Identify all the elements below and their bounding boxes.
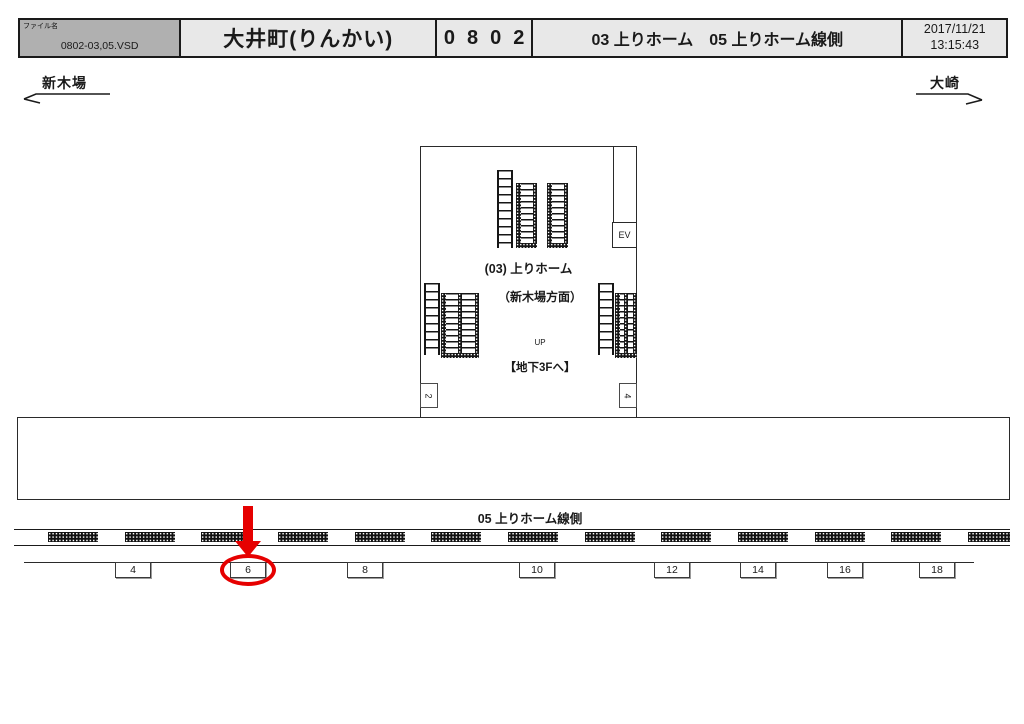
- track-hatch: [738, 532, 788, 542]
- position-marker-10-label: 10: [531, 564, 543, 576]
- location-code-cell: 0802: [437, 20, 533, 56]
- elevator-label: EV: [618, 230, 630, 240]
- escalator-rail: [533, 183, 538, 248]
- timestamp-date: 2017/11/21: [924, 22, 986, 38]
- column-marker-4-label: 4: [623, 393, 633, 398]
- highlight-arrow-shaft: [243, 506, 253, 542]
- station-name-cell: 大井町(りんかい): [181, 20, 437, 56]
- column-marker-2-label: 2: [424, 393, 434, 398]
- escalator-comb: [615, 353, 637, 358]
- platform-outline: [17, 417, 1010, 500]
- position-marker-16: 16: [827, 562, 863, 578]
- position-marker-10: 10: [519, 562, 555, 578]
- escalator-comb: [441, 353, 479, 358]
- position-marker-18: 18: [919, 562, 955, 578]
- stairs-upper-icon: [497, 170, 513, 248]
- track-hatch: [968, 532, 1010, 542]
- track-hatch: [278, 532, 328, 542]
- position-marker-12-label: 12: [666, 564, 678, 576]
- position-marker-8-label: 8: [362, 564, 368, 576]
- track-band: [14, 529, 1010, 546]
- position-marker-14: 14: [740, 562, 776, 578]
- column-marker-2: 2: [420, 383, 438, 408]
- station-diagram-page: ファイル名 0802-03,05.VSD 大井町(りんかい) 0802 03 上…: [0, 0, 1024, 724]
- basement-destination-label: 【地下3Fへ】: [432, 359, 648, 375]
- track-hatch: [125, 532, 175, 542]
- escalator-steps: [521, 183, 533, 248]
- diagram-description-cell: 03 上りホーム 05 上りホーム線側: [533, 20, 903, 56]
- file-name-label: ファイル名: [23, 21, 58, 31]
- escalator-upper-right-icon: [547, 183, 568, 248]
- elevator: EV: [612, 222, 637, 248]
- file-name-cell: ファイル名 0802-03,05.VSD: [20, 20, 181, 56]
- track-hatch: [355, 532, 405, 542]
- position-marker-12: 12: [654, 562, 690, 578]
- track-hatch: [585, 532, 635, 542]
- highlight-circle: [220, 554, 276, 586]
- track-hatch: [508, 532, 558, 542]
- timestamp-cell: 2017/11/21 13:15:43: [903, 20, 1006, 56]
- track-hatch: [431, 532, 481, 542]
- column-marker-4: 4: [619, 383, 637, 408]
- file-name-value: 0802-03,05.VSD: [20, 40, 179, 52]
- escalator-rail: [564, 183, 569, 248]
- west-arrow-icon: [20, 72, 116, 106]
- platform-edge-label: 05 上りホーム線側: [410, 508, 650, 527]
- title-block: ファイル名 0802-03,05.VSD 大井町(りんかい) 0802 03 上…: [18, 18, 1008, 58]
- timestamp-time: 13:15:43: [930, 38, 979, 54]
- position-marker-8: 8: [347, 562, 383, 578]
- track-hatch: [891, 532, 941, 542]
- location-code: 0802: [444, 27, 537, 50]
- position-marker-16-label: 16: [839, 564, 851, 576]
- escalator-comb: [516, 243, 537, 248]
- position-marker-4-label: 4: [130, 564, 136, 576]
- escalator-steps: [552, 183, 564, 248]
- concourse-platform-label: (03) 上りホーム: [420, 258, 637, 277]
- escalator-upper-left-icon: [516, 183, 537, 248]
- track-hatch: [48, 532, 98, 542]
- elevator-shaft-wall: [613, 146, 614, 223]
- east-arrow-icon: [912, 72, 1008, 106]
- up-label: UP: [432, 338, 648, 347]
- position-marker-18-label: 18: [931, 564, 943, 576]
- track-hatch: [815, 532, 865, 542]
- position-marker-14-label: 14: [752, 564, 764, 576]
- escalator-comb: [547, 243, 568, 248]
- direction-west: 新木場: [20, 72, 116, 106]
- track-hatch: [661, 532, 711, 542]
- station-name: 大井町(りんかい): [223, 23, 393, 53]
- position-marker-4: 4: [115, 562, 151, 578]
- direction-east: 大崎: [912, 72, 1008, 106]
- diagram-description: 03 上りホーム 05 上りホーム線側: [592, 26, 844, 50]
- concourse-direction-label: （新木場方面）: [432, 288, 648, 305]
